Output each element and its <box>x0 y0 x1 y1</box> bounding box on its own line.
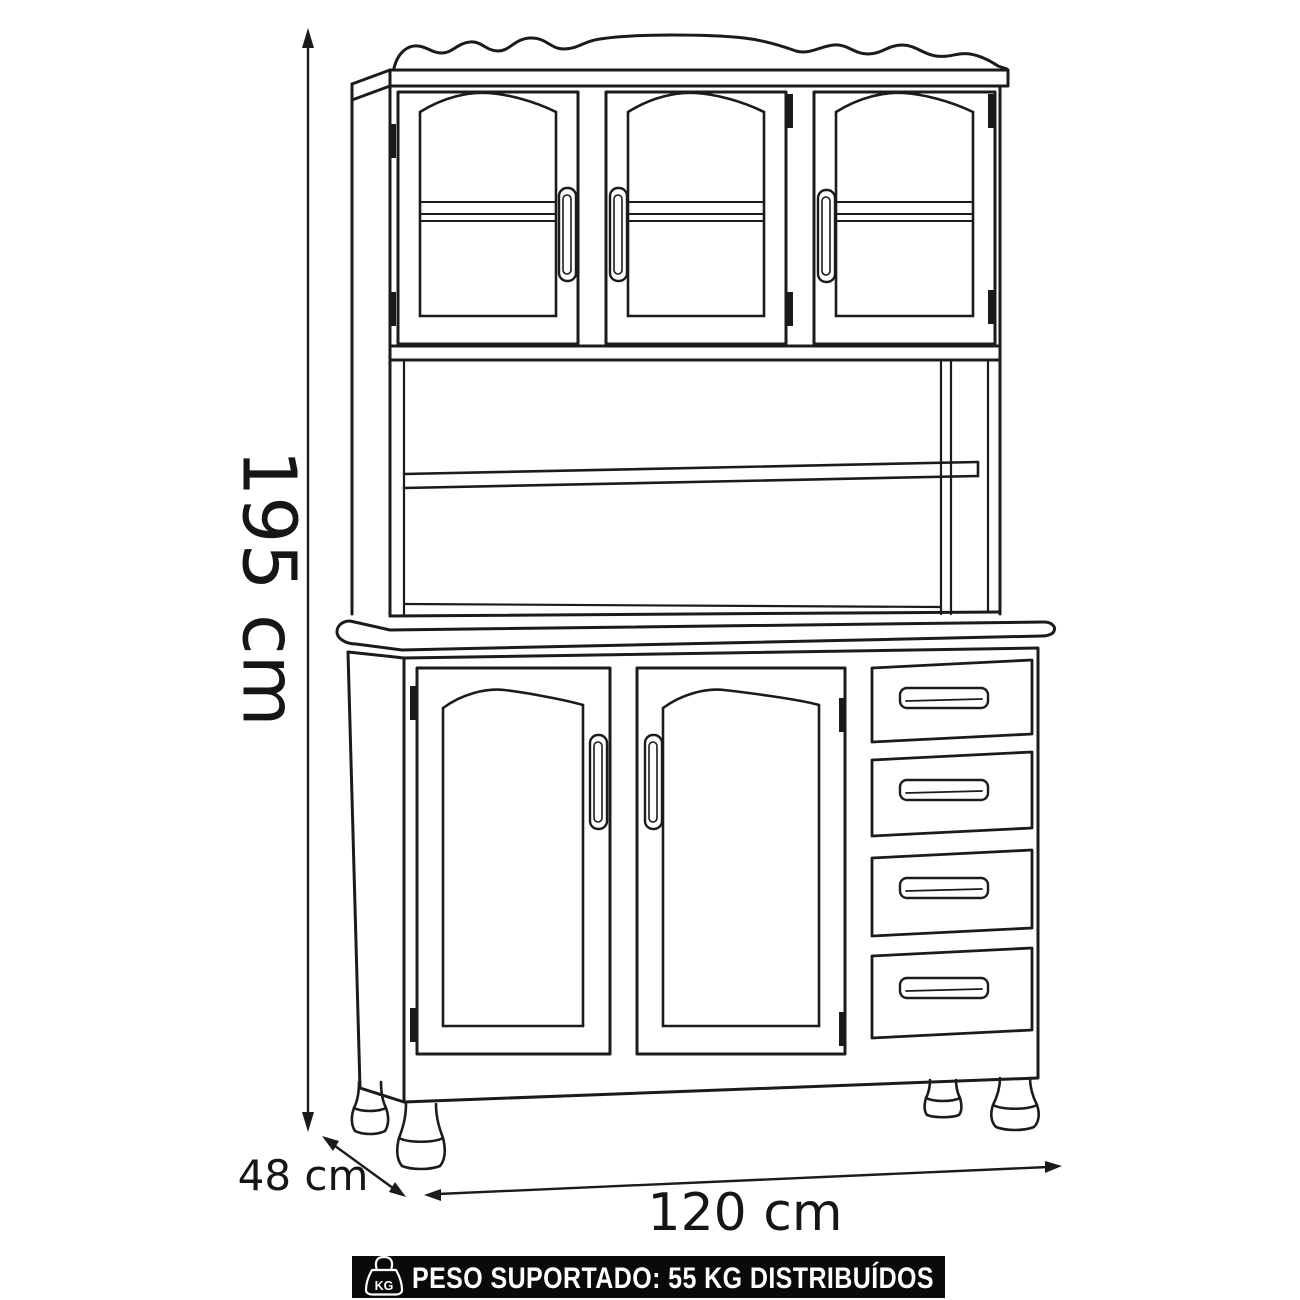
product-dimension-diagram: 195 cm 48 cm 120 cm KG PESO SUPORTADO: 5… <box>0 0 1300 1300</box>
weight-kg-icon-label: KG <box>375 1279 394 1293</box>
width-dimension-label: 120 cm <box>647 1183 842 1243</box>
cabinet-diagram-svg: 195 cm 48 cm 120 cm KG PESO SUPORTADO: 5… <box>0 0 1300 1300</box>
weight-banner: KG PESO SUPORTADO: 55 KG DISTRIBUÍDOS <box>352 1256 945 1298</box>
height-dimension-label: 195 cm <box>225 449 311 727</box>
depth-dimension-label: 48 cm <box>238 1151 369 1200</box>
background <box>0 0 1300 1300</box>
weight-banner-label: PESO SUPORTADO: 55 KG DISTRIBUÍDOS <box>412 1261 934 1295</box>
